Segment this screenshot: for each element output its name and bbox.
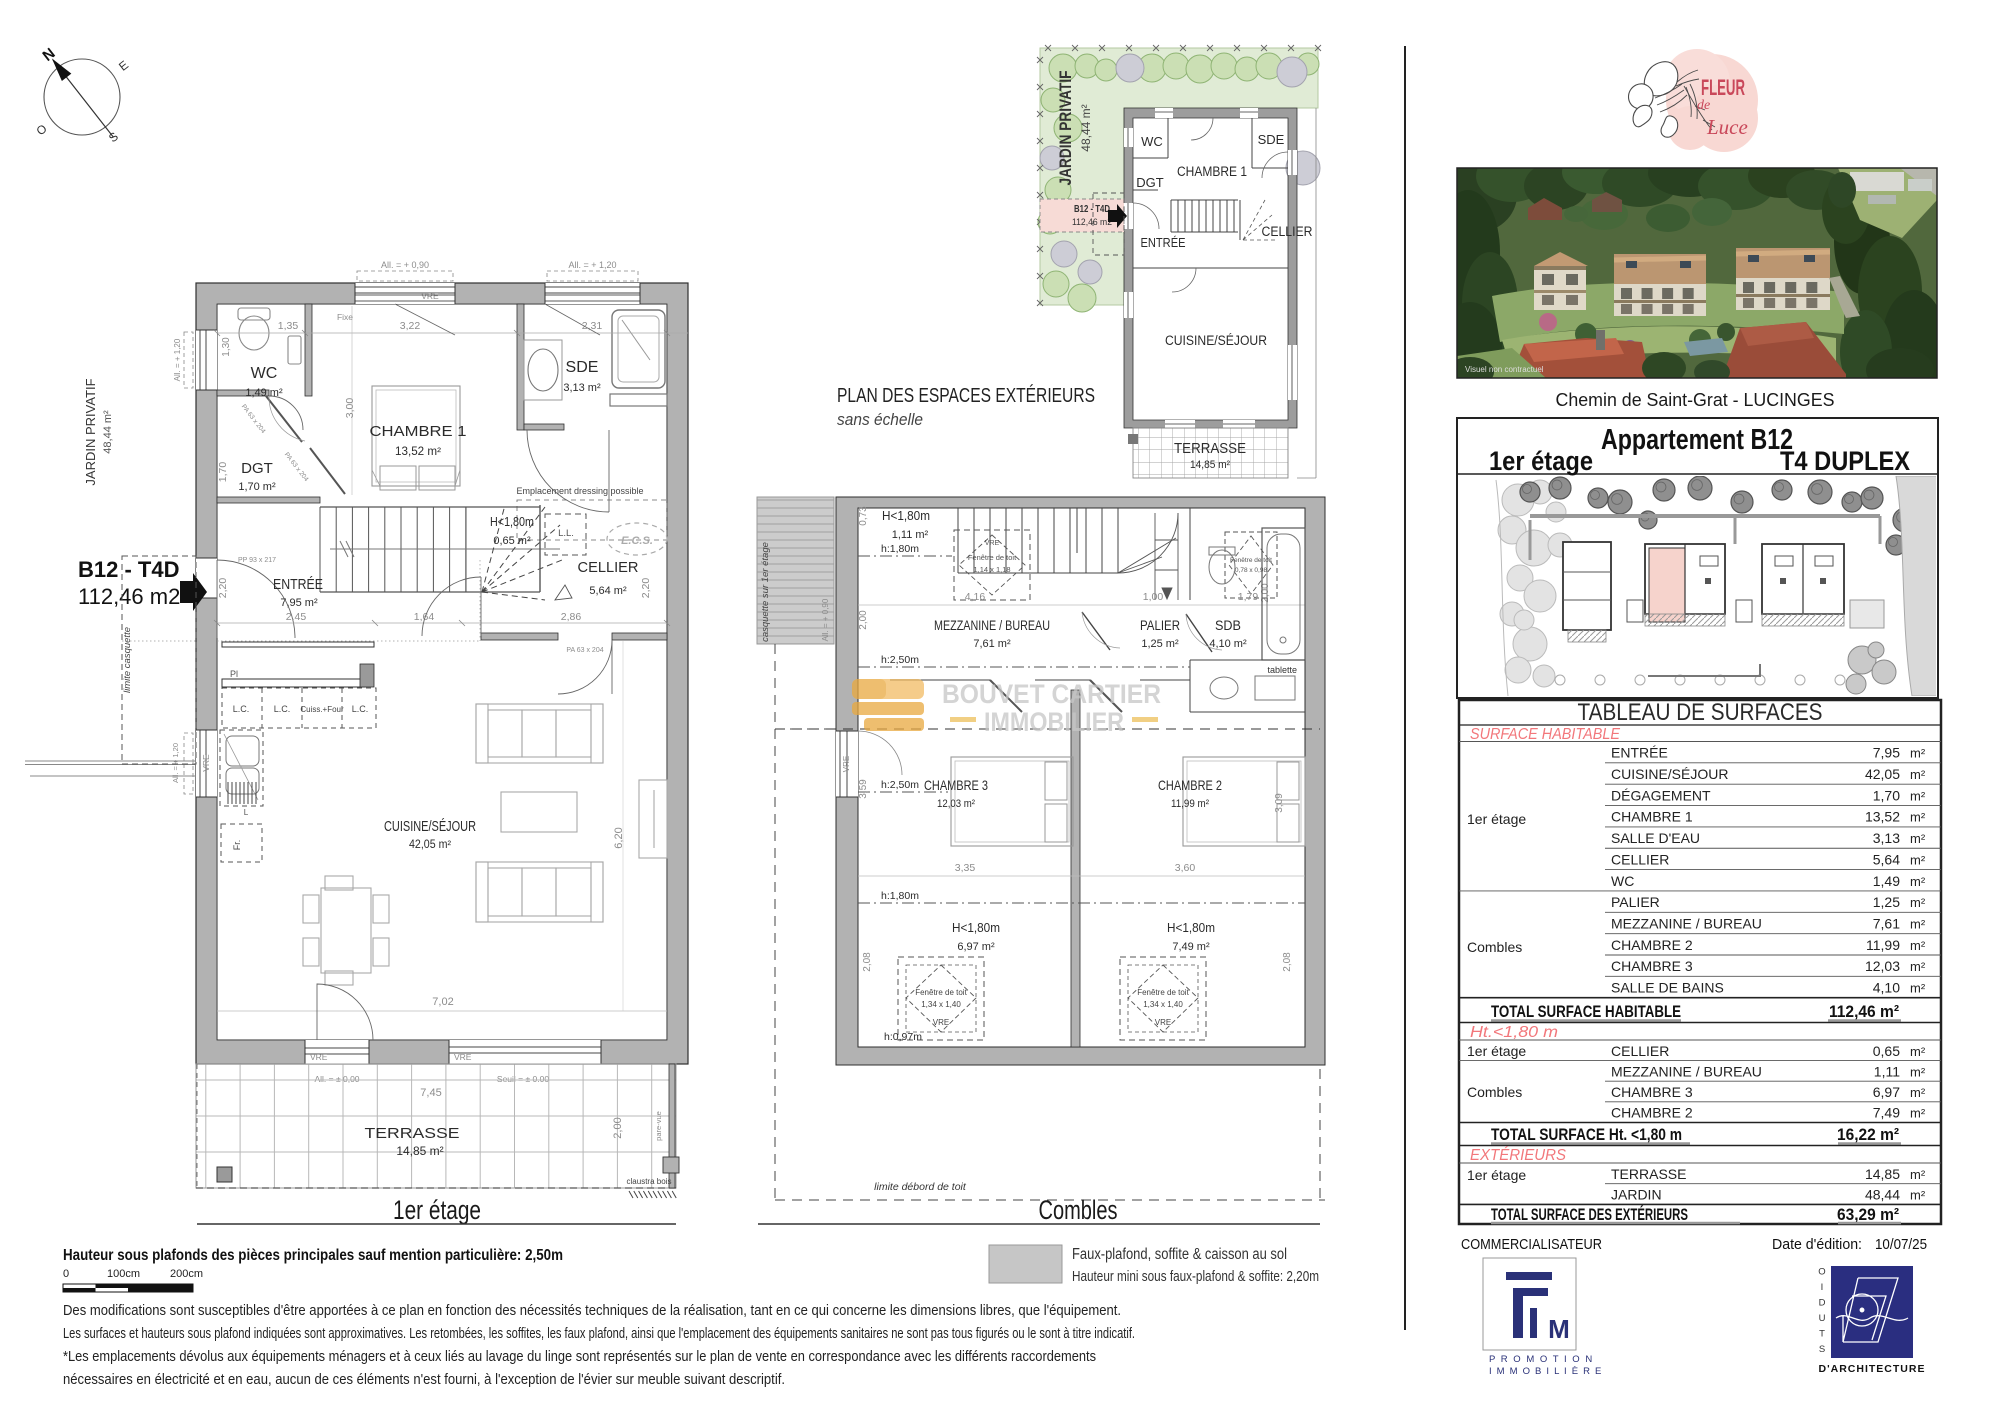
svg-text:D: D	[1819, 1298, 1826, 1309]
svg-text:1,14 x 1,18: 1,14 x 1,18	[973, 565, 1010, 574]
svg-text:de: de	[1697, 98, 1710, 113]
svg-text:MEZZANINE / BUREAU: MEZZANINE / BUREAU	[934, 617, 1050, 633]
svg-text:4,10 m²: 4,10 m²	[1209, 638, 1247, 650]
svg-text:Faux-plafond, soffite & caisso: Faux-plafond, soffite & caisson au sol	[1072, 1246, 1287, 1263]
svg-text:DGT: DGT	[241, 460, 273, 477]
svg-text:1er étage: 1er étage	[1467, 1043, 1526, 1059]
svg-text:Appartement B12: Appartement B12	[1601, 424, 1793, 456]
svg-text:VRE: VRE	[454, 1052, 472, 1062]
svg-text:PLAN DES ESPACES EXTÉRIEURS: PLAN DES ESPACES EXTÉRIEURS	[837, 384, 1095, 407]
svg-text:H<1,80m: H<1,80m	[882, 508, 930, 523]
svg-text:Combles: Combles	[1039, 1195, 1118, 1225]
svg-text:14,85 m²: 14,85 m²	[396, 1144, 443, 1158]
svg-text:Ht.<1,80 m: Ht.<1,80 m	[1470, 1024, 1558, 1041]
svg-text:48,44 m²: 48,44 m²	[1079, 104, 1093, 151]
svg-text:VRE: VRE	[201, 754, 211, 772]
svg-text:2,08: 2,08	[1282, 952, 1293, 972]
svg-text:VRE: VRE	[842, 756, 851, 772]
svg-text:CELLIER: CELLIER	[1611, 851, 1669, 867]
svg-text:3,35: 3,35	[955, 862, 976, 874]
svg-text:Cuiss.+Four: Cuiss.+Four	[300, 705, 344, 714]
svg-text:I M M O B I L I È R E: I M M O B I L I È R E	[1489, 1366, 1603, 1377]
svg-text:0,73: 0,73	[858, 506, 869, 526]
svg-text:48,44 m²: 48,44 m²	[102, 410, 114, 454]
svg-text:H<1,80m: H<1,80m	[952, 920, 1000, 935]
svg-text:Chemin de Saint-Grat - LUCINGE: Chemin de Saint-Grat - LUCINGES	[1556, 389, 1835, 410]
svg-text:h:2,50m: h:2,50m	[881, 654, 919, 666]
svg-text:14,85 m²: 14,85 m²	[1190, 459, 1230, 471]
svg-text:B12 - T4D: B12 - T4D	[78, 557, 179, 582]
svg-text:1,49 m²: 1,49 m²	[245, 387, 283, 399]
svg-text:Fr.: Fr.	[232, 840, 242, 851]
svg-text:VRE: VRE	[1155, 1018, 1171, 1027]
svg-text:1,70: 1,70	[217, 462, 229, 483]
svg-text:TERRASSE: TERRASSE	[365, 1125, 460, 1142]
svg-text:m²: m²	[1910, 1085, 1926, 1100]
svg-text:7,95: 7,95	[1873, 745, 1900, 761]
svg-text:112,46 m2: 112,46 m2	[78, 584, 180, 609]
svg-text:h:1,80m: h:1,80m	[881, 890, 919, 902]
svg-text:CELLIER: CELLIER	[1611, 1043, 1669, 1059]
svg-text:10/07/25: 10/07/25	[1875, 1236, 1927, 1253]
svg-text:1,49: 1,49	[1873, 873, 1900, 889]
svg-text:m²: m²	[1910, 788, 1926, 803]
svg-text:limite débord de toit: limite débord de toit	[874, 1181, 967, 1193]
svg-text:JARDIN PRIVATIF: JARDIN PRIVATIF	[1056, 71, 1075, 186]
svg-text:1,35: 1,35	[278, 320, 299, 332]
svg-text:L: L	[244, 808, 249, 817]
svg-text:VRE: VRE	[933, 1018, 949, 1027]
svg-text:Fixe: Fixe	[337, 312, 353, 322]
svg-text:CHAMBRE 3: CHAMBRE 3	[924, 777, 988, 793]
svg-text:SALLE DE BAINS: SALLE DE BAINS	[1611, 980, 1724, 996]
svg-text:3,00: 3,00	[344, 398, 356, 419]
svg-text:ENTRÉE: ENTRÉE	[273, 576, 323, 593]
svg-text:48,44: 48,44	[1865, 1187, 1900, 1203]
svg-text:7,49: 7,49	[1873, 1105, 1900, 1121]
svg-text:Pl: Pl	[230, 669, 238, 679]
svg-text:TERRASSE: TERRASSE	[1611, 1166, 1686, 1182]
svg-text:PALIER: PALIER	[1140, 617, 1180, 633]
svg-text:12,03 m²: 12,03 m²	[937, 798, 975, 810]
svg-text:EXTÉRIEURS: EXTÉRIEURS	[1470, 1147, 1567, 1164]
svg-text:Des modifications sont suscept: Des modifications sont susceptibles d'êt…	[63, 1302, 1121, 1319]
svg-text:1,79: 1,79	[1238, 591, 1259, 603]
svg-text:1,34 x 1,40: 1,34 x 1,40	[1143, 1000, 1183, 1009]
svg-text:CHAMBRE 3: CHAMBRE 3	[1611, 958, 1693, 974]
svg-text:1,25: 1,25	[1873, 894, 1900, 910]
svg-text:I: I	[1821, 1282, 1824, 1293]
svg-text:m²: m²	[1910, 916, 1926, 931]
svg-text:L.C.: L.C.	[274, 704, 291, 714]
svg-text:Fenêtre de toit: Fenêtre de toit	[968, 553, 1017, 562]
svg-text:7,95 m²: 7,95 m²	[280, 597, 318, 609]
svg-text:m²: m²	[1910, 938, 1926, 953]
svg-text:CHAMBRE 2: CHAMBRE 2	[1611, 937, 1693, 953]
svg-text:5,64: 5,64	[1873, 851, 1900, 867]
svg-text:0: 0	[63, 1268, 69, 1280]
svg-text:FLEUR: FLEUR	[1701, 75, 1745, 100]
svg-text:PALIER: PALIER	[1611, 894, 1660, 910]
svg-text:h:1,80m: h:1,80m	[881, 543, 919, 555]
svg-text:42,05: 42,05	[1865, 766, 1900, 782]
svg-text:Fenêtre de toit: Fenêtre de toit	[1230, 557, 1272, 564]
svg-text:1,25 m²: 1,25 m²	[1141, 638, 1179, 650]
svg-text:E.C.S.: E.C.S.	[621, 535, 653, 547]
svg-text:200cm: 200cm	[170, 1268, 203, 1280]
svg-text:0,65 m²: 0,65 m²	[493, 535, 531, 547]
svg-text:All. = + 1,20: All. = + 1,20	[173, 338, 182, 381]
svg-text:All. = + 1,20: All. = + 1,20	[568, 260, 616, 270]
svg-text:5,64 m²: 5,64 m²	[589, 585, 627, 597]
svg-text:CELLIER: CELLIER	[578, 560, 639, 576]
svg-text:1,30: 1,30	[221, 337, 232, 357]
svg-text:m²: m²	[1910, 1106, 1926, 1121]
svg-text:11,99 m²: 11,99 m²	[1171, 798, 1209, 810]
svg-text:CUISINE/SÉJOUR: CUISINE/SÉJOUR	[1165, 333, 1267, 348]
svg-text:L.L.: L.L.	[558, 528, 574, 539]
svg-text:h:2,50m: h:2,50m	[881, 779, 919, 791]
svg-text:PA 63 x 204: PA 63 x 204	[283, 451, 310, 483]
svg-text:2,20: 2,20	[217, 578, 229, 599]
svg-text:1,11: 1,11	[1874, 1063, 1900, 1079]
svg-text:1er étage: 1er étage	[1467, 811, 1526, 827]
svg-text:7,61 m²: 7,61 m²	[973, 638, 1011, 650]
svg-text:VRE: VRE	[421, 291, 439, 301]
svg-text:L.C.: L.C.	[233, 704, 250, 714]
svg-text:112,46 m²: 112,46 m²	[1829, 1003, 1899, 1021]
svg-text:COMMERCIALISATEUR: COMMERCIALISATEUR	[1461, 1236, 1602, 1253]
svg-text:1,70: 1,70	[1873, 787, 1900, 803]
svg-text:T: T	[1819, 1329, 1825, 1340]
svg-text:3,60: 3,60	[1175, 862, 1196, 874]
svg-text:SDE: SDE	[1258, 132, 1285, 147]
svg-text:2,45: 2,45	[286, 611, 307, 623]
svg-text:WC: WC	[251, 365, 278, 382]
svg-text:nécessaires en électricité et: nécessaires en électricité et en eau, au…	[63, 1371, 785, 1388]
svg-text:CHAMBRE 2: CHAMBRE 2	[1611, 1105, 1693, 1121]
svg-text:ENTRÉE: ENTRÉE	[1611, 745, 1668, 761]
svg-text:casquette sur 1er étage: casquette sur 1er étage	[760, 542, 771, 642]
svg-text:6,97: 6,97	[1873, 1084, 1900, 1100]
svg-text:m²: m²	[1910, 959, 1926, 974]
svg-text:CELLIER: CELLIER	[1262, 224, 1313, 239]
svg-text:TOTAL SURFACE Ht. <1,80 m: TOTAL SURFACE Ht. <1,80 m	[1491, 1126, 1682, 1144]
svg-text:4,10: 4,10	[1873, 980, 1900, 996]
svg-text:SALLE D'EAU: SALLE D'EAU	[1611, 830, 1700, 846]
svg-text:D'ARCHITECTURE: D'ARCHITECTURE	[1819, 1363, 1926, 1375]
svg-text:ENTRÉE: ENTRÉE	[1141, 235, 1186, 250]
svg-text:SURFACE HABITABLE: SURFACE HABITABLE	[1470, 726, 1621, 743]
svg-text:3,13 m²: 3,13 m²	[563, 382, 601, 394]
svg-text:2,00: 2,00	[612, 1117, 624, 1138]
svg-text:MEZZANINE / BUREAU: MEZZANINE / BUREAU	[1611, 915, 1762, 931]
svg-text:SDE: SDE	[566, 359, 599, 376]
svg-text:H<1,80m: H<1,80m	[490, 514, 534, 529]
svg-text:Luce: Luce	[1706, 115, 1748, 139]
svg-text:1,11 m²: 1,11 m²	[892, 529, 929, 541]
svg-text:pare-vue: pare-vue	[654, 1111, 663, 1141]
svg-text:112,46 m2: 112,46 m2	[1072, 217, 1112, 228]
svg-text:Emplacement dressing possible: Emplacement dressing possible	[516, 486, 643, 496]
svg-text:2,08: 2,08	[862, 952, 873, 972]
svg-text:Combles: Combles	[1467, 1084, 1522, 1100]
svg-text:CUISINE/SÉJOUR: CUISINE/SÉJOUR	[384, 818, 476, 835]
svg-text:Visuel non contractuel: Visuel non contractuel	[1465, 365, 1544, 374]
svg-text:Les surfaces et hauteurs sous: Les surfaces et hauteurs sous plafond in…	[63, 1325, 1135, 1342]
svg-text:7,61: 7,61	[1873, 915, 1900, 931]
svg-text:S: S	[1819, 1344, 1825, 1355]
svg-text:JARDIN PRIVATIF: JARDIN PRIVATIF	[83, 378, 98, 485]
svg-text:14,85: 14,85	[1865, 1166, 1900, 1182]
svg-text:2,00: 2,00	[858, 610, 869, 630]
svg-text:CHAMBRE 2: CHAMBRE 2	[1158, 777, 1222, 793]
svg-text:3,13: 3,13	[1873, 830, 1900, 846]
svg-text:TOTAL SURFACE DES EXTÉRIEURS: TOTAL SURFACE DES EXTÉRIEURS	[1491, 1205, 1688, 1224]
svg-text:*Les emplacements dévolus aux: *Les emplacements dévolus aux équipement…	[63, 1348, 1096, 1365]
svg-text:S: S	[106, 129, 121, 145]
svg-text:3,22: 3,22	[400, 320, 421, 332]
svg-text:T4 DUPLEX: T4 DUPLEX	[1780, 446, 1910, 476]
svg-text:100cm: 100cm	[107, 1268, 140, 1280]
svg-text:Hauteur mini sous faux-plafond: Hauteur mini sous faux-plafond & soffite…	[1072, 1268, 1319, 1285]
svg-text:All. = + 1,20: All. = + 1,20	[171, 743, 180, 783]
svg-text:CHAMBRE 1: CHAMBRE 1	[370, 423, 467, 440]
svg-text:m²: m²	[1910, 767, 1926, 782]
svg-text:TERRASSE: TERRASSE	[1174, 440, 1246, 457]
svg-text:B12 - T4D: B12 - T4D	[1074, 203, 1110, 215]
svg-text:Hauteur sous plafonds des pièc: Hauteur sous plafonds des pièces princip…	[63, 1247, 563, 1264]
svg-text:m²: m²	[1910, 981, 1926, 996]
svg-text:DÉGAGEMENT: DÉGAGEMENT	[1611, 787, 1711, 803]
svg-text:1,00: 1,00	[1143, 591, 1164, 603]
svg-text:4,16: 4,16	[965, 591, 986, 603]
svg-text:2,86: 2,86	[561, 611, 582, 623]
svg-text:L.C.: L.C.	[352, 704, 369, 714]
svg-text:CHAMBRE 1: CHAMBRE 1	[1611, 809, 1693, 825]
svg-text:P R O M O T I O N: P R O M O T I O N	[1489, 1354, 1594, 1365]
svg-text:16,22 m²: 16,22 m²	[1837, 1126, 1899, 1144]
svg-text:7,49 m²: 7,49 m²	[1172, 941, 1210, 953]
svg-text:1er étage: 1er étage	[1467, 1167, 1526, 1183]
svg-text:42,05 m²: 42,05 m²	[409, 839, 451, 851]
svg-text:VRE: VRE	[985, 540, 1000, 547]
svg-text:m²: m²	[1910, 746, 1926, 761]
svg-text:All. = + 0,90: All. = + 0,90	[381, 260, 429, 270]
svg-text:m²: m²	[1910, 810, 1926, 825]
svg-text:Combles: Combles	[1467, 939, 1522, 955]
svg-text:O: O	[34, 121, 50, 138]
svg-text:SDB: SDB	[1215, 617, 1241, 633]
svg-text:Fenêtre de toit: Fenêtre de toit	[1137, 988, 1189, 997]
svg-text:12,03: 12,03	[1865, 958, 1900, 974]
svg-text:PA 63 x 204: PA 63 x 204	[240, 403, 267, 435]
svg-text:BOUVET CARTIER: BOUVET CARTIER	[942, 679, 1161, 709]
svg-text:m²: m²	[1910, 852, 1926, 867]
svg-text:PA 63 x 204: PA 63 x 204	[566, 647, 603, 654]
svg-text:All. = + 0,90: All. = + 0,90	[821, 598, 830, 641]
svg-text:3,59: 3,59	[858, 779, 869, 799]
svg-text:DGT: DGT	[1136, 175, 1164, 190]
svg-text:63,29 m²: 63,29 m²	[1837, 1206, 1899, 1224]
svg-text:13,52 m²: 13,52 m²	[395, 446, 441, 458]
svg-text:TABLEAU DE SURFACES: TABLEAU DE SURFACES	[1578, 699, 1823, 726]
svg-text:3,09: 3,09	[1274, 793, 1285, 813]
svg-text:m²: m²	[1910, 1044, 1926, 1059]
svg-text:E: E	[116, 58, 131, 74]
svg-text:CHAMBRE 3: CHAMBRE 3	[1611, 1084, 1693, 1100]
svg-text:VRE: VRE	[310, 1052, 328, 1062]
svg-text:m²: m²	[1910, 831, 1926, 846]
svg-text:m²: m²	[1910, 874, 1926, 889]
svg-text:tablette: tablette	[1267, 665, 1297, 675]
svg-text:O: O	[1818, 1267, 1825, 1278]
svg-text:M: M	[1548, 1314, 1570, 1344]
svg-text:1,34 x 1,40: 1,34 x 1,40	[921, 1000, 961, 1009]
svg-text:1,70 m²: 1,70 m²	[238, 481, 276, 493]
svg-text:m²: m²	[1910, 1167, 1926, 1182]
svg-text:JARDIN: JARDIN	[1611, 1187, 1662, 1203]
svg-text:CHAMBRE 1: CHAMBRE 1	[1177, 164, 1247, 179]
svg-text:CUISINE/SÉJOUR: CUISINE/SÉJOUR	[1611, 766, 1728, 782]
svg-text:sans échelle: sans échelle	[837, 410, 923, 429]
svg-text:2,20: 2,20	[640, 578, 652, 599]
svg-text:claustra bois: claustra bois	[627, 1177, 672, 1186]
svg-text:m²: m²	[1910, 895, 1926, 910]
svg-text:h:0,97m: h:0,97m	[884, 1031, 922, 1043]
svg-text:1er étage: 1er étage	[1489, 446, 1593, 476]
svg-text:WC: WC	[1141, 134, 1163, 149]
svg-text:Fenêtre de toit: Fenêtre de toit	[915, 988, 967, 997]
svg-text:Date d'édition:: Date d'édition:	[1772, 1236, 1862, 1253]
svg-text:7,02: 7,02	[432, 996, 453, 1008]
svg-text:13,52: 13,52	[1865, 809, 1900, 825]
svg-text:11,99: 11,99	[1866, 937, 1900, 953]
svg-text:0,65: 0,65	[1873, 1043, 1900, 1059]
svg-text:TOTAL SURFACE HABITABLE: TOTAL SURFACE HABITABLE	[1491, 1003, 1681, 1021]
svg-text:m²: m²	[1910, 1188, 1926, 1203]
svg-text:limite casquette: limite casquette	[122, 627, 133, 693]
svg-text:MEZZANINE / BUREAU: MEZZANINE / BUREAU	[1611, 1063, 1762, 1079]
svg-text:1er étage: 1er étage	[393, 1195, 481, 1225]
svg-text:U: U	[1819, 1313, 1826, 1324]
svg-text:PP 93 x 217: PP 93 x 217	[238, 557, 276, 564]
svg-text:IMMOBILIER: IMMOBILIER	[984, 707, 1124, 737]
svg-text:H<1,80m: H<1,80m	[1167, 920, 1215, 935]
svg-text:m²: m²	[1910, 1064, 1926, 1079]
svg-text:6,97 m²: 6,97 m²	[957, 941, 995, 953]
svg-text:7,45: 7,45	[420, 1087, 441, 1099]
svg-text:WC: WC	[1611, 873, 1634, 889]
